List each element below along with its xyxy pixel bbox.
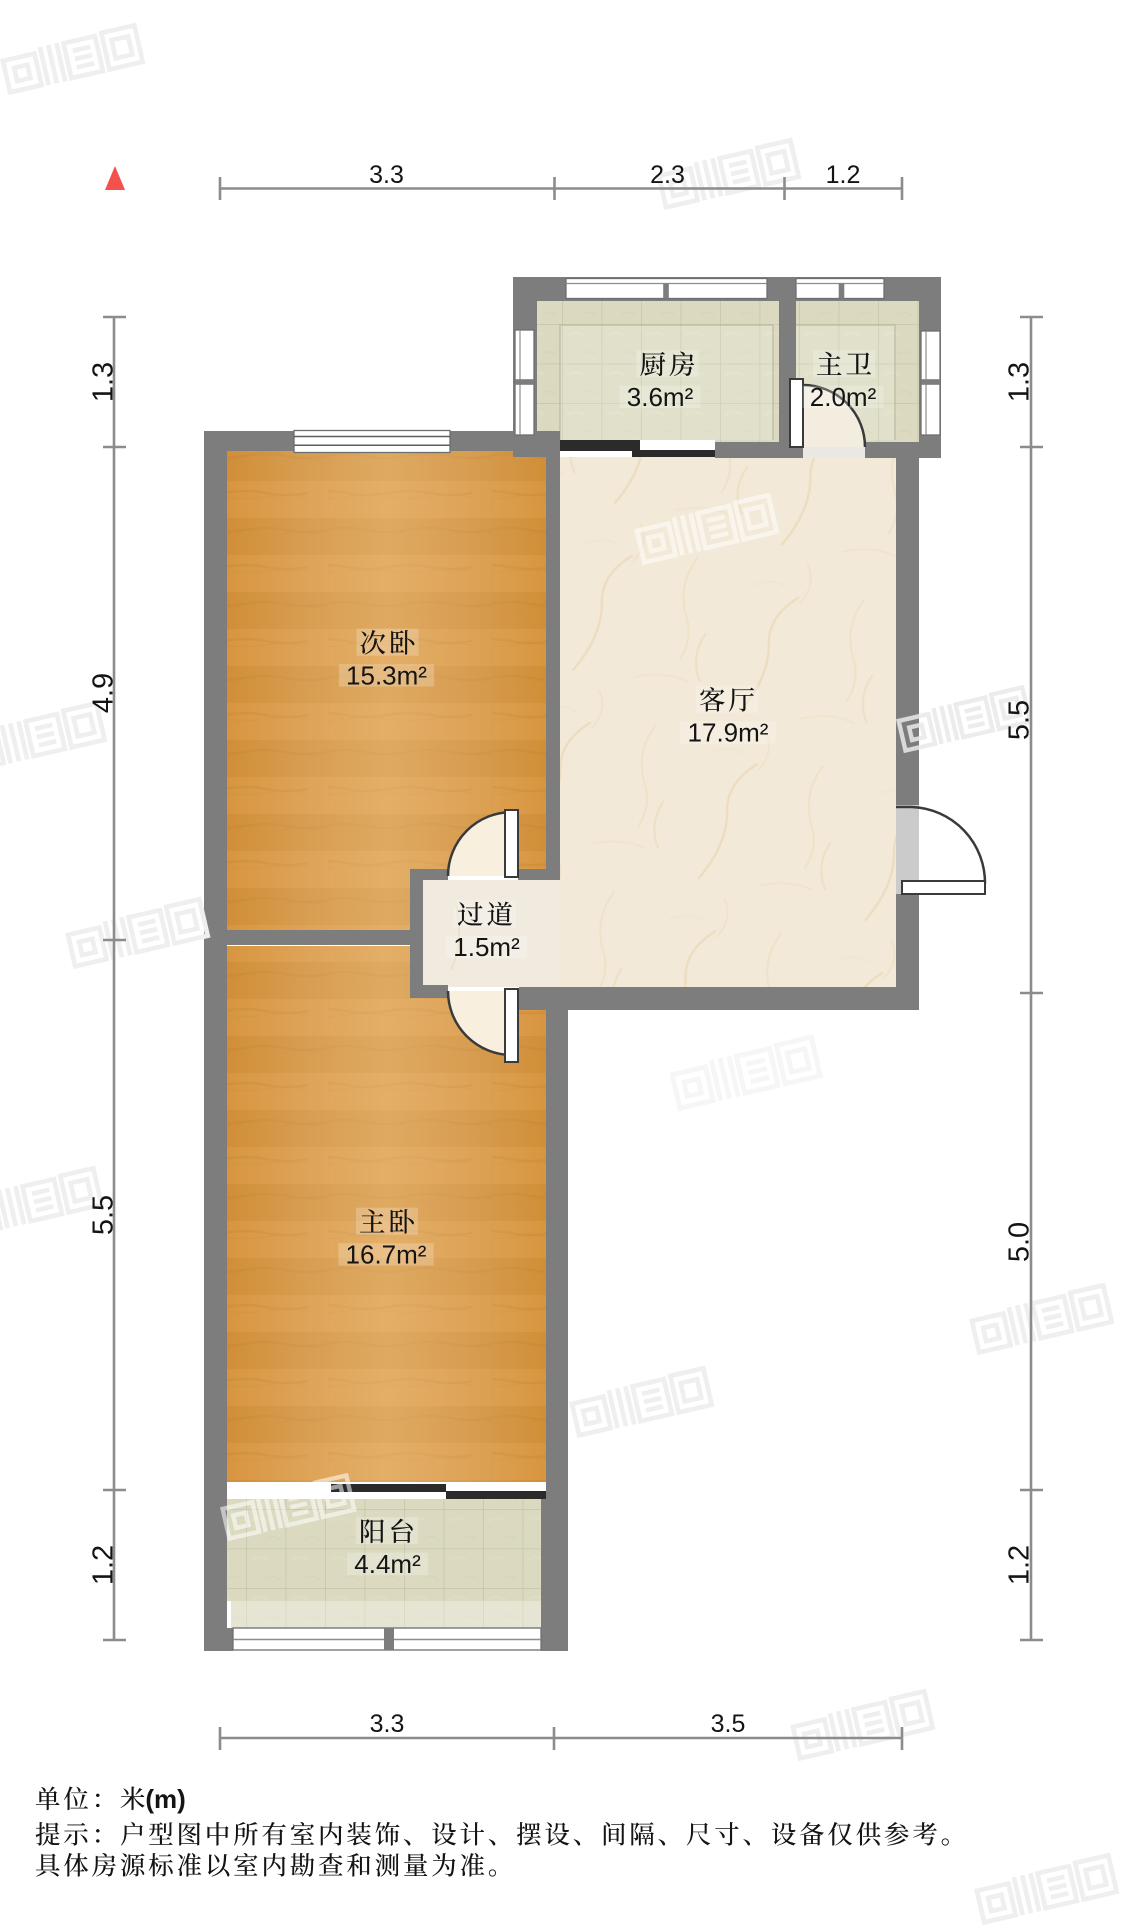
svg-text:(m): (m) (145, 1784, 185, 1814)
svg-text:4.4m²: 4.4m² (354, 1549, 421, 1579)
svg-text:1.3: 1.3 (1004, 362, 1036, 402)
svg-text:1.2: 1.2 (1004, 1545, 1036, 1585)
svg-text:5.5: 5.5 (88, 1195, 120, 1235)
svg-text:2.3: 2.3 (650, 161, 685, 189)
svg-text:1.3: 1.3 (88, 362, 120, 402)
svg-text:3.5: 3.5 (711, 1710, 746, 1738)
svg-text:1.5m²: 1.5m² (453, 932, 520, 962)
svg-text:16.7m²: 16.7m² (346, 1240, 427, 1270)
svg-text:3.3: 3.3 (370, 1710, 405, 1738)
svg-text:4.9: 4.9 (88, 673, 120, 713)
svg-text:3.3: 3.3 (369, 161, 404, 189)
svg-text:5.0: 5.0 (1004, 1222, 1036, 1262)
svg-text:5.5: 5.5 (1004, 700, 1036, 740)
svg-text:2.0m²: 2.0m² (810, 382, 877, 412)
svg-text:17.9m²: 17.9m² (688, 718, 769, 748)
svg-text:1.2: 1.2 (88, 1545, 120, 1585)
svg-text:15.3m²: 15.3m² (346, 661, 427, 691)
svg-text:1.2: 1.2 (826, 161, 861, 189)
svg-text:3.6m²: 3.6m² (627, 382, 694, 412)
